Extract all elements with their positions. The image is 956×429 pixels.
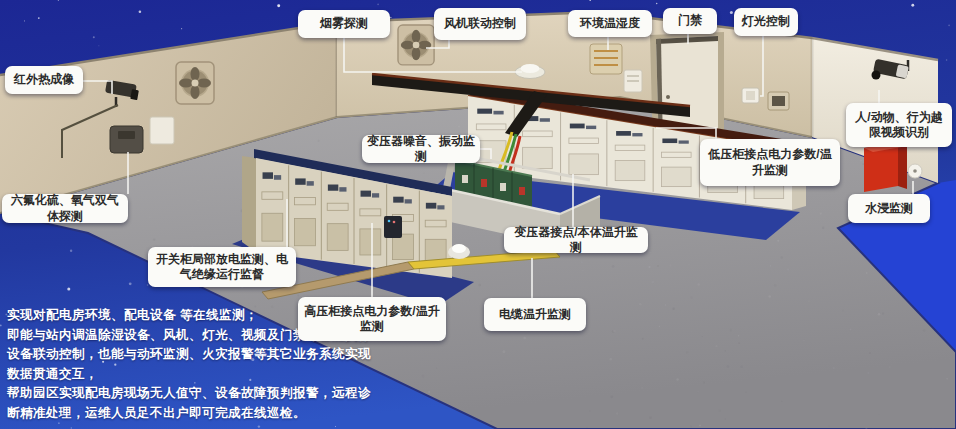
callout-label: 人/动物、行为越限视频识别 xyxy=(851,110,947,141)
callout-cable-temp[interactable]: 电缆温升监测 xyxy=(484,298,586,331)
callout-label: 六氟化硫、氧气双气体探测 xyxy=(7,193,123,224)
callout-switchgear-pd[interactable]: 开关柜局部放电监测、电气绝缘运行监督 xyxy=(148,247,296,287)
callout-smoke-detection[interactable]: 烟雾探测 xyxy=(298,10,390,38)
callout-label: 灯光控制 xyxy=(742,14,790,29)
callout-label: 烟雾探测 xyxy=(320,16,368,31)
callout-transformer-temp[interactable]: 变压器接点/本体温升监测 xyxy=(504,227,648,253)
callout-hv-cabinet[interactable]: 高压柜接点电力参数/温升监测 xyxy=(298,297,446,341)
callout-light-control[interactable]: 灯光控制 xyxy=(734,8,798,36)
description-line: 帮助园区实现配电房现场无人值守、设备故障预判报警，远程诊 xyxy=(7,384,407,404)
callout-transformer-noise[interactable]: 变压器噪音、振动监测 xyxy=(362,135,480,163)
wall-fan-icon xyxy=(398,25,434,65)
callout-label: 低压柜接点电力参数/温升监测 xyxy=(705,147,835,178)
callout-label: 水浸监测 xyxy=(865,201,913,216)
env-sensor-icon xyxy=(590,44,622,74)
callout-label: 风机联动控制 xyxy=(444,16,516,31)
fire-cabinet-icon xyxy=(864,142,907,192)
small-wall-sensor xyxy=(624,70,642,92)
description-line: 断精准处理，运维人员足不出户即可完成在线巡检。 xyxy=(7,404,407,424)
callout-label: 开关柜局部放电监测、电气绝缘运行监督 xyxy=(153,252,291,283)
water-sensor-icon xyxy=(908,164,922,178)
callout-infrared-thermal[interactable]: 红外热成像 xyxy=(5,66,83,94)
callout-lv-cabinet[interactable]: 低压柜接点电力参数/温升监测 xyxy=(700,139,840,186)
gas-detector-icon xyxy=(110,126,143,153)
callout-env-temp-humidity[interactable]: 环境温湿度 xyxy=(568,10,652,37)
description-line: 数据贯通交互， xyxy=(7,365,407,385)
callout-label: 环境温湿度 xyxy=(580,16,640,31)
callout-label: 变压器噪音、振动监测 xyxy=(367,134,475,165)
callout-door-access[interactable]: 门禁 xyxy=(663,8,717,34)
light-switch-icon xyxy=(742,88,759,103)
power-distribution-room-visualization: 烟雾探测 风机联动控制 环境温湿度 门禁 灯光控制 红外热成像 人/动物、行为越… xyxy=(0,0,956,429)
callout-gas-detection[interactable]: 六氟化硫、氧气双气体探测 xyxy=(2,194,128,223)
callout-label: 红外热成像 xyxy=(14,72,74,87)
callout-water-immersion[interactable]: 水浸监测 xyxy=(848,194,930,223)
pd-monitor-device xyxy=(384,216,402,238)
wall-fan-icon xyxy=(176,62,214,104)
callout-label: 变压器接点/本体温升监测 xyxy=(509,225,643,256)
wall-detector-box xyxy=(150,117,174,144)
callout-fan-linkage[interactable]: 风机联动控制 xyxy=(434,8,526,40)
callout-label: 电缆温升监测 xyxy=(499,307,571,322)
wall-control-panel xyxy=(768,92,789,110)
callout-label: 高压柜接点电力参数/温升监测 xyxy=(303,304,441,335)
callout-video-recognition[interactable]: 人/动物、行为越限视频识别 xyxy=(846,103,952,147)
description-line: 设备联动控制，也能与动环监测、火灾报警等其它业务系统实现 xyxy=(7,345,407,365)
callout-label: 门禁 xyxy=(678,13,702,28)
